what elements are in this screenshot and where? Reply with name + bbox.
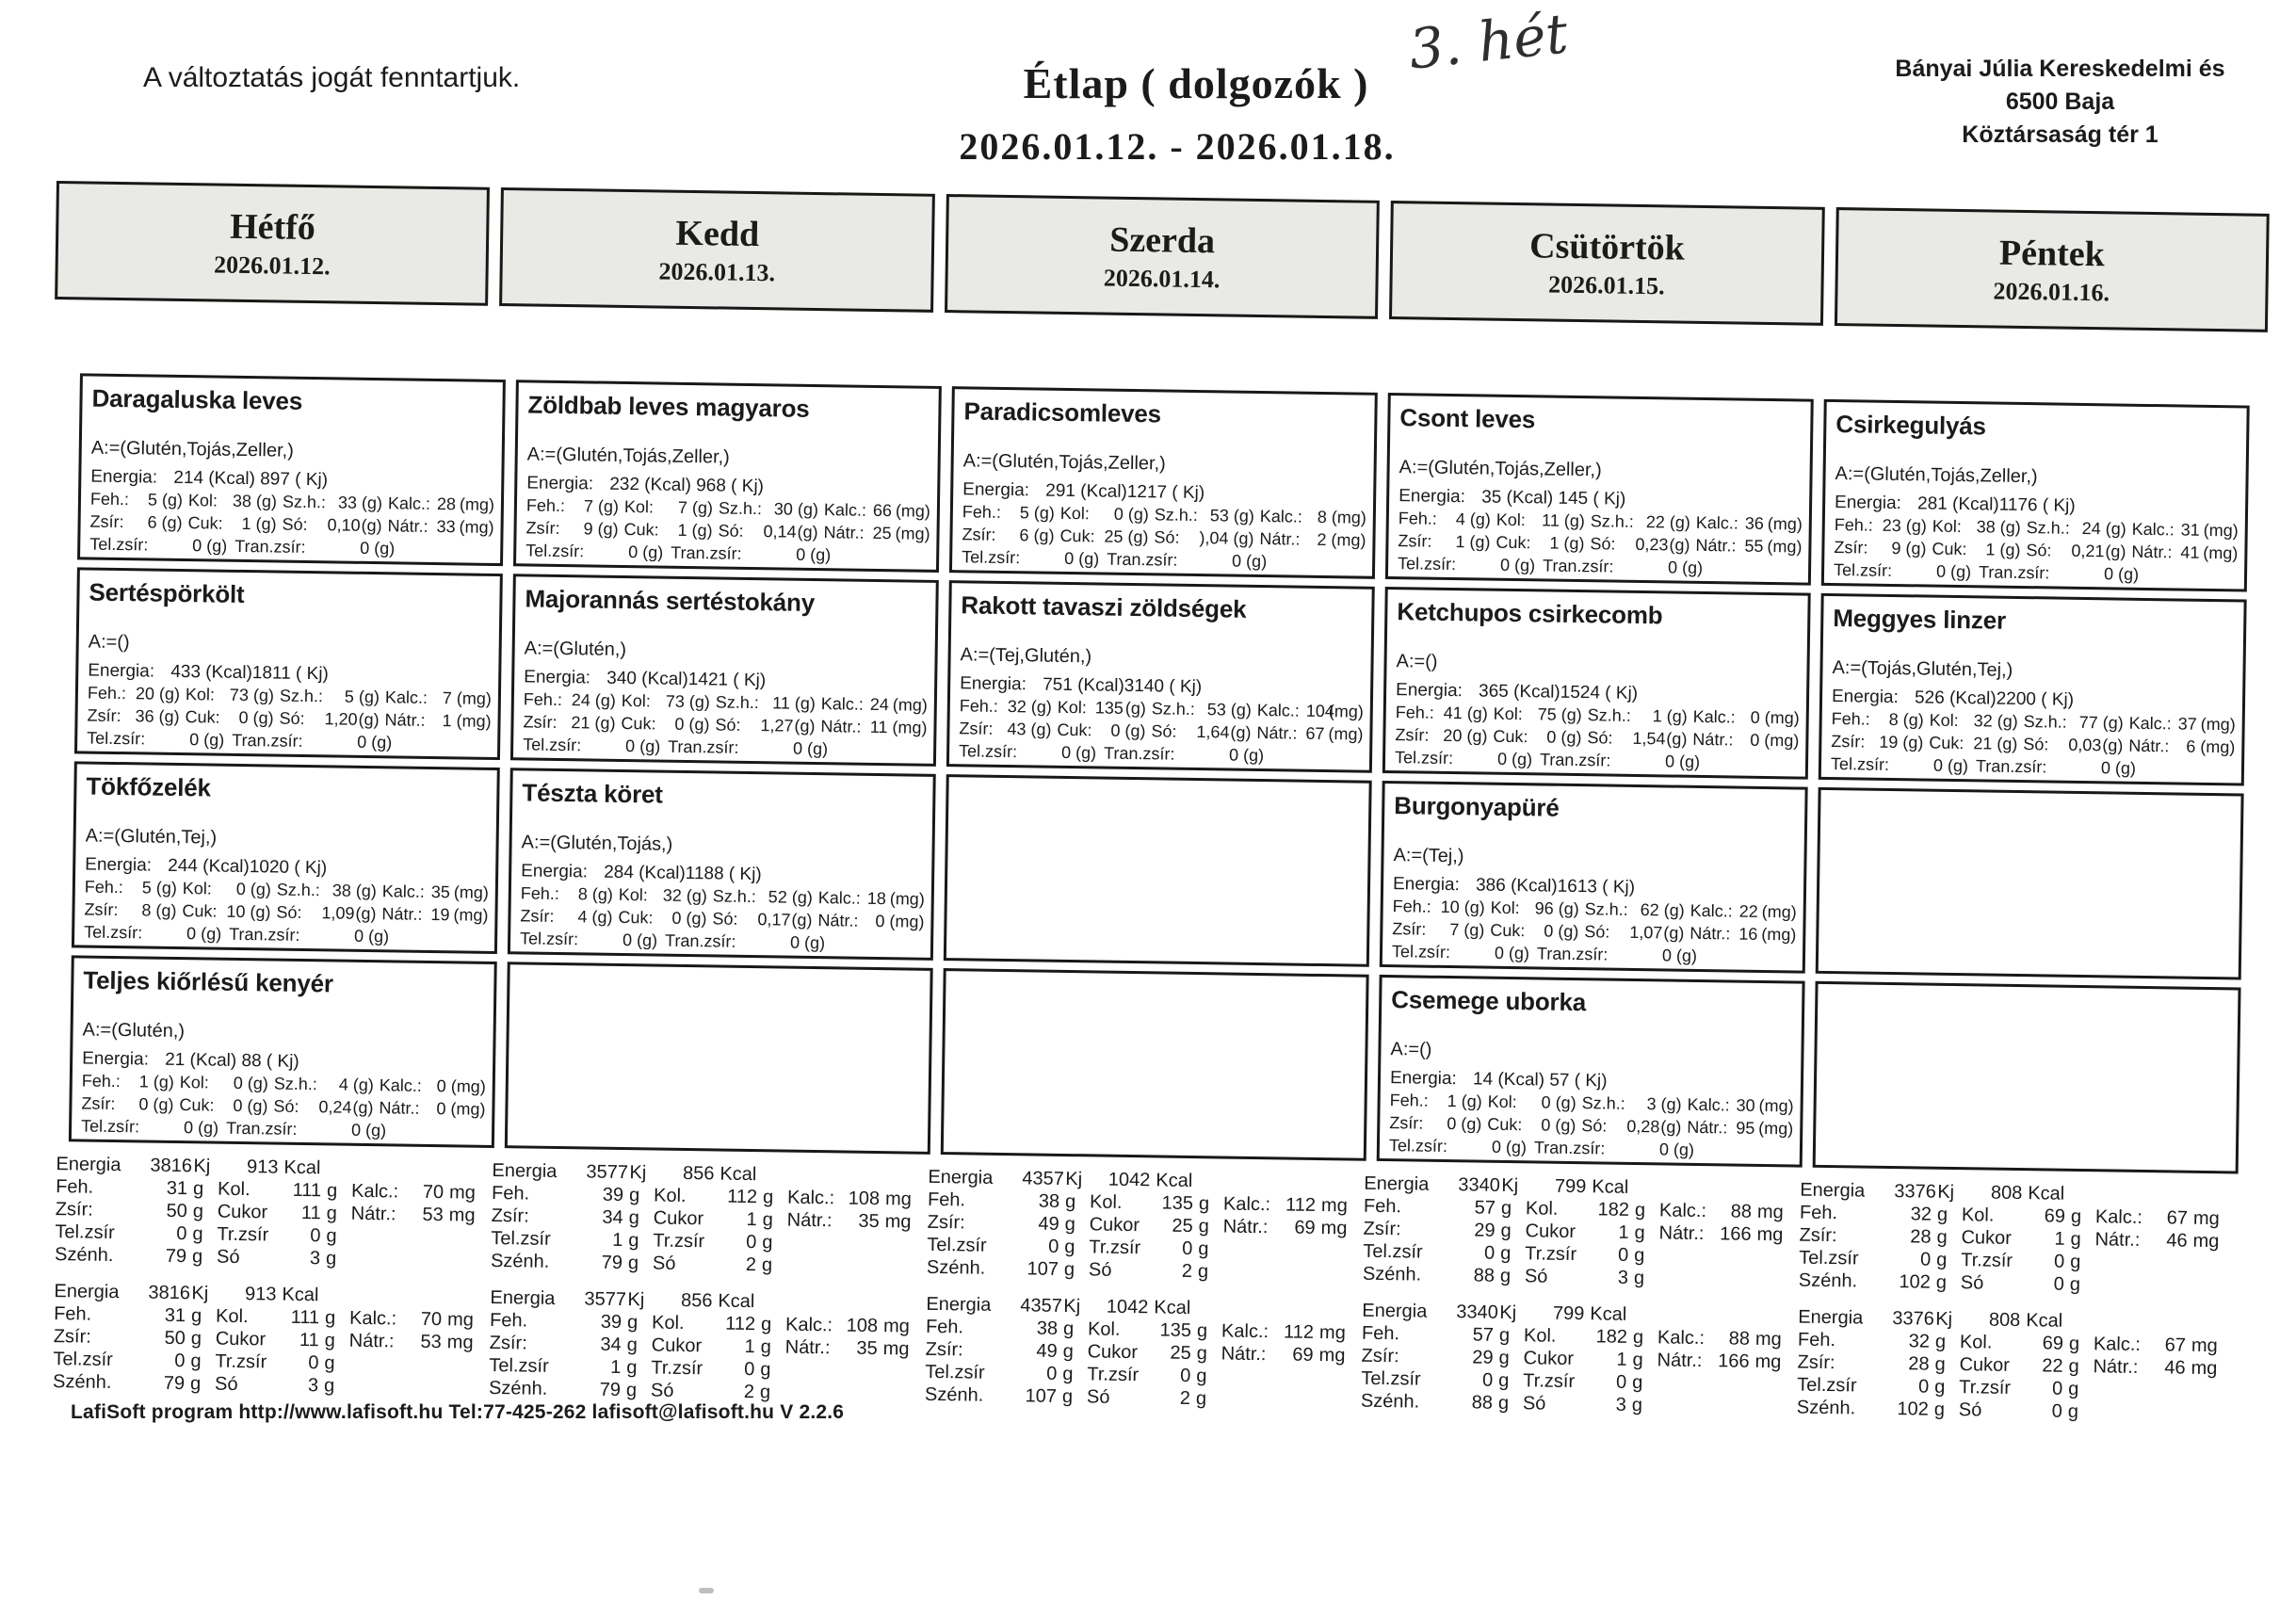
summary-value: 79 [585,1251,628,1274]
summary-value: 1 [1581,1348,1632,1371]
nutrient-unit: (mg) [1765,706,1803,730]
nutrient-unit: (g) [361,514,387,537]
nutrient-label: Zsír: [525,516,567,540]
summary-unit: g [1064,1258,1089,1281]
summary-value: 3816 [150,1155,193,1178]
nutrient-label: Kol: [1491,897,1528,920]
nutrient-value: 1,09 [321,901,355,925]
nutrient-label: Tel.zsír: [1398,552,1471,575]
nutrient-unit: (g) [1670,510,1696,533]
summary-value: 1 [710,1334,761,1358]
summary-label: Kol. [1526,1197,1584,1221]
nutrient-label: Tel.zsír: [84,921,157,945]
nutrient-value: 43 [1000,718,1030,740]
nutrient-value: 32 [1001,695,1031,718]
nutrient-value: 53 [1200,504,1234,527]
summary-label: Energia [1364,1172,1458,1196]
nutrient-unit: (g) [1461,1090,1487,1112]
summary-unit: g [1934,1399,1959,1421]
meal-title: Csont leves [1399,403,1801,438]
summary-unit: mg [1321,1194,1359,1218]
nutrient-value: 1 [1533,531,1563,554]
nutrient-unit: (g) [1997,733,2023,755]
nutrient-value: 24 [2072,517,2106,541]
summary-value: 57 [1456,1323,1499,1347]
nutrient-label: Tel.zsír: [1834,558,1907,582]
summary-value: 808 [1975,1181,2028,1205]
footer-text: LafiSoft program http://www.lafisoft.hu … [71,1401,844,1424]
nutrient-label: Só: [273,1095,318,1119]
nutrient-label: Kalc.: [821,692,870,716]
nutrient-label: Kol: [180,1071,218,1094]
nutrient-label: Feh.: [1396,701,1437,724]
summary-value: 35 [838,1336,883,1360]
nutrient-label: Zsír: [84,898,125,922]
nutrient-unit: (mg) [2201,713,2239,736]
summary-value: 0 [1581,1370,1632,1394]
nutrient-label: Tran.zsír: [671,542,757,565]
summary-label: Feh. [490,1309,584,1333]
summary-unit: mg [1754,1350,1792,1374]
summary-value: 913 [229,1283,282,1306]
summary-value: 799 [1537,1302,1590,1325]
summary-unit: Kcal [1592,1175,1789,1201]
nutrient-label: Nátr.: [384,708,433,732]
summary-value: 3 [1583,1266,1634,1289]
summary-label: Feh. [56,1175,150,1199]
summary-label: Szénh. [53,1370,147,1394]
nutrient-label: Cuk: [1057,719,1094,742]
summary-label: Zsír: [492,1205,586,1228]
nutrient-unit: (g) [2102,734,2128,756]
day-summary-block: Energia 3376 Kj 808 Kcal Feh.32gKol.69gK… [1799,1179,2226,1299]
summary-unit: g [324,1351,348,1374]
nutrient-value: 0 [754,736,807,760]
nutrient-unit: (g) [686,907,712,930]
summary-unit: g [2070,1273,2094,1296]
nutrient-value: 6 [2177,735,2200,757]
nutrient-value: 25 [1097,525,1127,547]
nutrient-value: 3 [1626,1092,1660,1116]
nutrient-unit: (g) [1506,1136,1534,1158]
nutrient-value: 23 [1876,514,1906,537]
nutrient-unit: (g) [1559,897,1585,920]
summary-label: Kalc.: [351,1180,404,1204]
meal-card: Sertéspörkölt A:=() Energia: 433 (Kcal)1… [74,567,503,760]
summary-label: Tel.zsír [55,1221,149,1244]
meal-card: Tökfőzelék A:=(Glutén,Tej,) Energia: 244… [72,761,500,954]
summary-label: Kalc.: [2094,1333,2146,1356]
summary-label: Tr.zsír [1087,1363,1145,1386]
summary-label: Tr.zsír [1089,1236,1147,1259]
summary-unit: g [1196,1342,1221,1365]
summary-unit: g [1196,1365,1221,1387]
nutrient-value: 0 [1629,556,1682,579]
summary-value: 0 [2017,1377,2068,1400]
nutrient-unit: (mg) [893,693,930,717]
summary-label: Só [1523,1392,1581,1415]
nutrient-label: Sz.h.: [719,496,764,520]
nutrient-value: 19 [1872,731,1902,753]
summary-unit: g [760,1381,784,1403]
nutrient-unit: (g) [1555,1091,1581,1114]
company-name: Bányai Júlia Kereskedelmi és [1822,53,2296,86]
summary-label: Kol. [216,1305,274,1329]
nutrient-value: 25 [872,522,895,544]
summary-label: Nátr.: [351,1203,404,1226]
summary-unit: g [1499,1324,1524,1347]
nutrient-label: Kol: [1930,709,1967,733]
summary-label: Só [1959,1399,2017,1422]
nutrient-unit: (g) [253,684,280,706]
nutrient-unit: (g) [1555,1114,1581,1137]
day-date: 2026.01.15. [1548,271,1665,301]
day-summary-block: Energia 4357 Kj 1042 Kcal Feh.38gKol.135… [927,1166,1354,1286]
nutrient-label: Só: [2023,733,2068,756]
nutrient-value: 52 [758,885,792,909]
nutrient-label: Energia: [524,667,606,688]
summary-unit: g [627,1334,652,1356]
nutrient-value: 0 [1193,549,1246,573]
summary-label: Feh. [1364,1195,1458,1219]
summary-label: Szénh. [1361,1390,1455,1414]
nutrient-value: 0 [1525,1113,1555,1136]
nutrient-unit: (g) [1682,557,1710,579]
summary-value: 38 [1020,1317,1063,1340]
summary-label: Zsír: [490,1332,584,1355]
summary-unit: mg [1757,1201,1795,1224]
summary-value: 0 [1455,1368,1498,1392]
nutrient-label: Sz.h.: [1591,509,1636,533]
summary-unit: mg [1756,1223,1794,1247]
nutrient-label: Kalc.: [1690,899,1739,923]
summary-label: Kalc.: [785,1314,838,1337]
nutrient-value: 0,21 [2071,540,2105,563]
summary-label: Szénh. [927,1256,1021,1280]
nutrient-label: Só: [2026,539,2071,562]
nutrient-unit: (mg) [895,522,932,545]
summary-label: Energia [56,1153,150,1176]
summary-value: 69 [1273,1343,1318,1366]
nutrient-unit: (g) [1246,550,1274,573]
nutrient-unit: (g) [158,705,185,728]
summary-value: 0 [1019,1362,1062,1385]
summary-unit: g [1936,1271,1961,1294]
nutrient-label: Só: [1154,526,1199,549]
summary-unit: g [1634,1244,1658,1267]
day-header: Kedd 2026.01.13. [499,187,934,313]
nutrient-value: 284 (Kcal)1188 ( Kj) [604,863,762,885]
summary-label: Szénh. [489,1377,583,1400]
meal-allergens: A:=(Glutén,Tej,) [86,826,487,853]
summary-value: 4357 [1020,1294,1063,1318]
nutrient-label: Tel.zsír: [1389,1134,1463,1157]
meal-card: Zöldbab leves magyaros A:=(Glutén,Tojás,… [513,380,942,573]
nutrient-label: Feh.: [1389,1089,1431,1112]
summary-unit: g [1498,1369,1523,1392]
summary-label: Feh. [1800,1202,1894,1225]
summary-label: Só [651,1380,709,1403]
summary-unit: g [1198,1237,1222,1260]
nutrient-value: 0 [218,1072,248,1094]
nutrient-label: Cuk: [185,705,222,729]
summary-label: Zsír: [1361,1345,1455,1368]
nutrient-unit: (g) [1950,560,1979,583]
summary-value: 107 [1021,1257,1064,1281]
nutrient-value: 30 [1736,1094,1758,1117]
summary-unit: Kj [1065,1168,1103,1191]
summary-value: 49 [1020,1339,1063,1363]
summary-value: 70 [404,1181,449,1205]
nutrient-unit: (g) [792,886,818,909]
meal-title: Paradicsomleves [963,396,1365,431]
nutrient-unit: (g) [1902,731,1929,753]
summary-label: Tel.zsír [491,1227,585,1251]
nutrient-value: 35 [431,881,454,903]
nutrient-unit: (mg) [1761,923,1799,946]
summary-value: 31 [148,1304,191,1328]
day-summaries: Energia 4357 Kj 1042 Kcal Feh.38gKol.135… [925,1166,1354,1427]
summary-label: Tr.zsír [1523,1369,1581,1393]
meal-allergens: A:=(Glutén,Tojás,Zeller,) [1835,463,2236,491]
nutrient-value: 38 [322,879,356,902]
day-summaries: Energia 3340 Kj 799 Kcal Feh.57gKol.182g… [1361,1172,1790,1433]
meal-card: Rakott tavaszi zöldségek A:=(Tej,Glutén,… [946,580,1375,773]
nutrient-label: Kol: [1932,515,1970,539]
nutrient-unit: (mg) [2203,542,2240,565]
summary-value: 1 [1583,1221,1634,1244]
meal-title: Meggyes linzer [1833,604,2234,639]
summary-unit: g [1937,1204,1962,1226]
summary-unit: mg [2192,1230,2230,1253]
summary-value: 135 [1148,1191,1199,1215]
nutrient-unit: (g) [365,1119,394,1141]
nutrient-label: Feh.: [90,488,132,511]
nutrient-label: Feh.: [88,682,129,705]
nutrient-unit: (g) [1509,942,1537,964]
nutrient-unit: (g) [1461,1112,1487,1135]
nutrient-unit: (g) [156,877,183,899]
nutrient-label: Tran.zsír: [668,736,754,759]
nutrient-value: 0 [658,713,688,736]
nutrient-label: Nátr.: [1692,728,1741,752]
summary-unit: mg [1755,1328,1793,1351]
summary-unit: g [1936,1249,1961,1271]
meal-card: Csont leves A:=(Glutén,Tojás,Zeller,) En… [1385,393,1814,586]
summary-value: 856 [665,1289,718,1313]
summary-value: 50 [150,1200,193,1223]
meal-title: Zöldbab leves magyaros [527,390,929,425]
day-header: Csütörtök 2026.01.15. [1389,201,1824,326]
summary-unit: mg [1318,1344,1356,1367]
nutrient-value: 30 [764,497,798,521]
summary-unit: g [629,1184,654,1206]
nutrient-unit: (g) [1514,554,1543,576]
nutrient-label: Zsír: [962,523,1003,546]
summary-value: 25 [1145,1341,1196,1365]
nutrient-value: 0,24 [318,1095,352,1119]
summary-value: 38 [1022,1189,1065,1213]
nutrient-label: Tran.zsír: [665,930,752,953]
nutrient-value: 0 [217,1094,247,1117]
nutrient-label: Nátr.: [1695,534,1744,558]
nutrient-value: 0 [160,728,203,752]
nutrient-unit: (mg) [453,903,491,927]
nutrient-value: 9 [567,517,597,540]
nutrient-value: 0 [1190,743,1243,767]
summary-unit: g [193,1177,218,1200]
nutrient-unit: (g) [352,1096,379,1119]
summary-label: Kol. [218,1178,276,1202]
day-name: Szerda [1109,219,1216,263]
nutrient-label: Zsír: [81,1092,122,1116]
nutrient-unit: (g) [639,735,668,757]
nutrient-value: 19 [430,903,453,926]
meal-allergens: A:=() [1390,1039,1791,1066]
nutrient-unit: (g) [1464,896,1491,918]
summary-unit: mg [1320,1217,1358,1240]
summary-value: 39 [584,1310,627,1334]
summary-label: Zsír: [926,1338,1020,1362]
nutrient-unit: (g) [1666,727,1692,750]
nutrient-unit: (g) [1230,721,1256,744]
nutrient-value: 1,64 [1196,720,1230,744]
summary-label: Só [1089,1258,1147,1282]
summary-unit: g [1064,1236,1089,1258]
summary-unit: g [193,1200,218,1222]
meal-card: Ketchupos csirkecomb A:=() Energia: 365 … [1382,587,1811,780]
nutrient-value: 21 (Kcal) 88 ( Kj) [165,1050,299,1073]
nutrient-value: 0 [1098,502,1128,525]
nutrient-unit: (g) [1667,704,1693,727]
nutrient-unit: (g) [256,490,283,512]
summary-unit: g [324,1374,348,1397]
nutrient-label: Kalc.: [824,498,873,522]
nutrient-label: Feh.: [1393,895,1434,918]
nutrient-unit: (g) [2105,540,2131,562]
summary-value: 0 [1891,1375,1934,1399]
nutrient-label: Zsír: [1389,1111,1431,1135]
summary-value: 35 [840,1209,885,1233]
nutrient-unit: (mg) [457,687,494,710]
nutrient-label: Tel.zsír: [1392,940,1465,963]
nutrient-value: 0 [1035,546,1078,570]
summary-value: 0 [2017,1399,2068,1423]
nutrient-label: Feh.: [521,881,562,905]
nutrient-label: Sz.h.: [1155,503,1200,526]
summary-value: 1042 [1103,1169,1156,1192]
nutrient-unit: (g) [791,909,817,931]
summary-label: Cukor [218,1201,276,1224]
meal-title: Tökfőzelék [86,772,487,807]
nutrient-value: 41 [1437,702,1467,724]
nutrient-label: Kalc.: [1687,1093,1736,1117]
nutrient-value: 20 [1436,724,1466,747]
nutrient-label: Sz.h.: [277,879,322,902]
nutrient-label: Feh.: [1835,513,1876,537]
summary-value: 107 [1019,1384,1062,1408]
summary-label: Cukor [1090,1213,1148,1237]
summary-label: Szénh. [491,1250,585,1273]
nutrient-value: 0 [655,907,686,930]
summary-unit: mg [449,1181,487,1205]
nutrient-label: Sz.h.: [280,685,325,708]
summary-value: 3340 [1456,1301,1499,1324]
nutrient-unit: (g) [595,689,622,712]
day-name: Péntek [1999,233,2106,276]
summary-unit: g [1635,1199,1659,1221]
summary-label: Tel.zsír [489,1354,583,1378]
nutrient-unit: (g) [1997,710,2024,733]
summary-label: Tr.zsír [1959,1376,2017,1399]
summary-value: 0 [2019,1272,2070,1296]
meal-allergens: A:=(Tej,) [1393,845,1794,872]
summary-label: Kalc.: [1221,1319,1274,1343]
nutrient-value: 281 (Kcal)1176 ( Kj) [1917,493,2076,516]
summary-value: 34 [586,1205,629,1229]
nutrient-value: 0 [1525,1091,1555,1113]
nutrient-unit: (g) [359,686,385,708]
nutrient-label: Sz.h.: [1581,1091,1626,1115]
summary-value: 3577 [584,1287,627,1311]
nutrient-unit: (mg) [889,910,927,933]
nutrient-value: 433 (Kcal)1811 ( Kj) [170,662,329,685]
nutrient-value: 66 [873,499,896,522]
summary-label: Tel.zsír [925,1361,1019,1384]
day-name: Hétfő [230,206,315,249]
summary-value: 3376 [1892,1307,1935,1331]
nutrient-label: Cuk: [623,518,661,542]
summary-value: 102 [1893,1270,1936,1294]
nutrient-value: 104 [1306,700,1329,722]
summary-unit: g [628,1229,653,1252]
summary-value: 0 [147,1350,190,1373]
nutrient-value: 16 [1738,923,1761,946]
nutrient-label: Tran.zsír: [232,729,318,752]
meal-allergens: A:=(Glutén,) [82,1020,483,1047]
nutrient-unit: (g) [356,880,382,902]
summary-unit: Kj [1063,1295,1101,1318]
nutrient-value: 0 [321,536,374,559]
nutrient-value: 0 [1904,753,1948,777]
summary-label: Zsír: [54,1325,148,1349]
nutrient-unit: (mg) [892,716,930,739]
summary-unit: mg [885,1188,923,1211]
nutrient-label: Kalc.: [380,1074,428,1097]
nutrient-value: 41 [2180,542,2203,564]
summary-label: Feh. [492,1182,586,1205]
summary-value: 22 [2017,1354,2068,1378]
nutrient-unit: (g) [692,496,719,519]
nutrient-value: 0 [1463,1135,1506,1158]
summary-value: 799 [1539,1174,1592,1198]
day-summaries: Energia 3376 Kj 808 Kcal Feh.32gKol.69gK… [1796,1179,2225,1440]
summary-unit: g [325,1306,349,1329]
summary-unit: Kcal [283,1156,481,1182]
nutrient-unit: (mg) [1758,1094,1796,1118]
nutrient-label: Kalc.: [1696,511,1745,535]
meal-card: Paradicsomleves A:=(Glutén,Tojás,Zeller,… [949,386,1378,579]
nutrient-label: Kol: [1060,502,1098,526]
nutrient-value: 0,17 [757,908,791,931]
nutrient-value: 0 [1431,1112,1461,1135]
nutrient-label: Nátr.: [1256,721,1305,745]
summary-value: 3 [1581,1393,1632,1416]
summary-label: Tr.zsír [651,1357,709,1381]
nutrient-label: Zsír: [1834,536,1875,559]
summary-label: Energia [1798,1306,1892,1330]
nutrient-unit: (mg) [896,499,933,523]
